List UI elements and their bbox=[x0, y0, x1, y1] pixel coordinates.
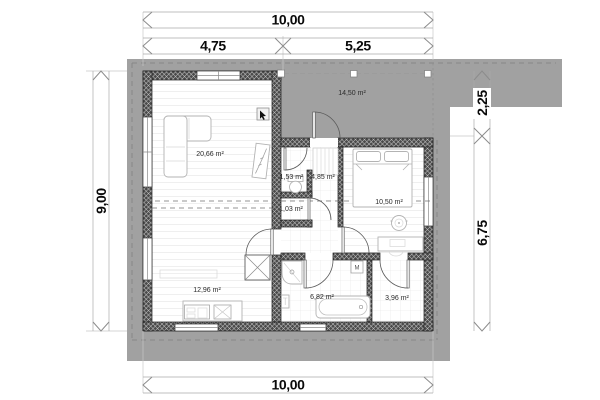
washing-machine-label: M bbox=[355, 266, 360, 272]
floor-plan-page: M 10,00 4,75 5,25 10,00 9,00 bbox=[0, 0, 600, 400]
dim-top-right: 5,25 bbox=[345, 38, 371, 54]
entrance-mat bbox=[313, 148, 338, 175]
window-living-left bbox=[143, 117, 152, 187]
dim-bottom-total: 10,00 bbox=[271, 377, 305, 393]
terrace-label: 14,50 m² bbox=[338, 90, 366, 97]
wc-label: 1,53 m² bbox=[280, 174, 304, 181]
dim-right-lower: 6,75 bbox=[474, 220, 490, 246]
window-bathroom-bottom bbox=[300, 324, 326, 331]
bathroom-sink bbox=[282, 295, 290, 308]
pillow bbox=[357, 152, 381, 162]
window-kitchen-bottom bbox=[175, 324, 218, 331]
pillow bbox=[385, 152, 409, 162]
window-kitchen-left bbox=[143, 238, 152, 280]
shower bbox=[282, 261, 302, 284]
utility-label: 3,96 m² bbox=[385, 295, 409, 302]
hall-label: 4,85 m² bbox=[311, 174, 335, 181]
floor-plan-canvas: M 10,00 4,75 5,25 10,00 9,00 bbox=[0, 0, 600, 400]
terrace-post bbox=[278, 70, 285, 77]
dim-right-upper: 2,25 bbox=[474, 90, 490, 116]
window-bedroom-right bbox=[424, 177, 433, 226]
bedroom-plant bbox=[391, 216, 408, 231]
socket-icon bbox=[257, 108, 269, 120]
storage-label: 1,03 m² bbox=[279, 206, 303, 213]
living-room-label: 20,66 m² bbox=[196, 151, 224, 158]
terrace-post bbox=[351, 71, 358, 78]
bathroom-label: 6,82 m² bbox=[310, 294, 334, 301]
bedroom-label: 10,50 m² bbox=[375, 199, 403, 206]
dim-top-total: 10,00 bbox=[271, 12, 305, 28]
dim-top-left: 4,75 bbox=[200, 38, 226, 54]
chimney bbox=[245, 255, 270, 280]
kitchen-label: 12,96 m² bbox=[193, 287, 221, 294]
dim-left-total: 9,00 bbox=[93, 188, 109, 214]
washing-machine: M bbox=[351, 261, 363, 273]
window-living-top bbox=[197, 71, 240, 80]
terrace-post bbox=[425, 71, 432, 78]
